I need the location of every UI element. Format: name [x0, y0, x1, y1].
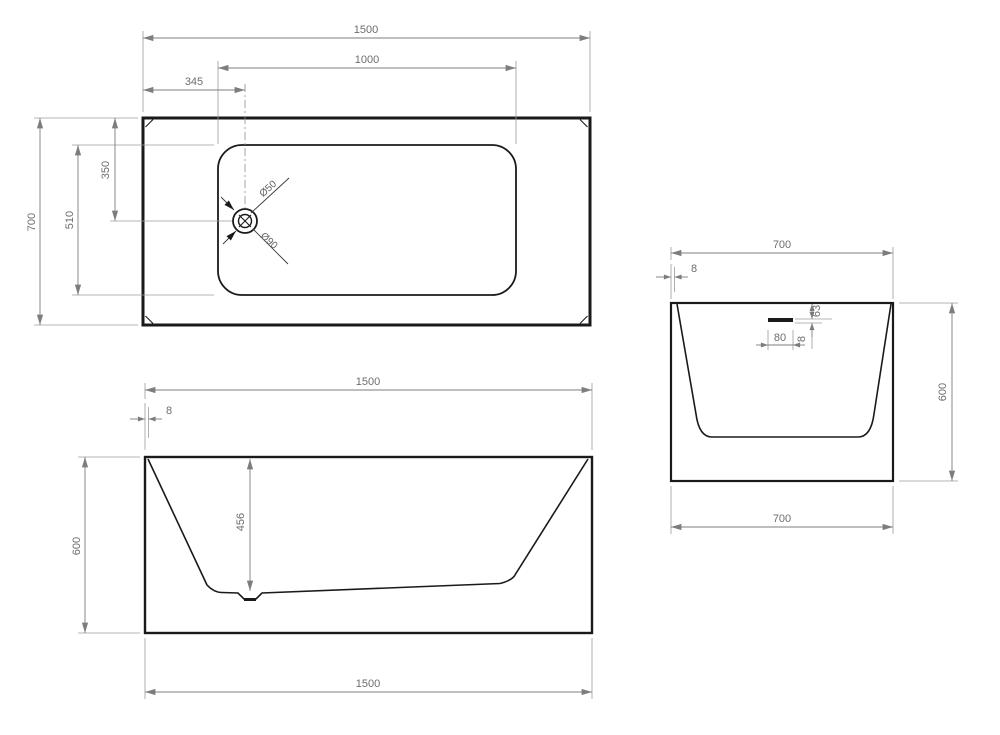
dim-top-drain-offset-left: 345 [185, 76, 203, 88]
corner-fillet-mark [580, 120, 588, 128]
bathtub-technical-drawing: Ø50 Ø90 1500 1000 345 700 510 350 [0, 0, 1000, 735]
front-view: 8 1500 600 456 1500 [71, 376, 592, 699]
dim-side-width-bottom: 700 [773, 513, 791, 525]
dim-top-basin-length: 1000 [355, 54, 379, 66]
dim-side-width-top: 700 [773, 239, 791, 251]
dim-top-drain-offset-top: 350 [100, 161, 112, 179]
dim-front-inner-depth: 456 [235, 513, 247, 531]
dim-side-height: 600 [937, 383, 949, 401]
drain-leader-arrow [221, 197, 234, 210]
top-view: Ø50 Ø90 1500 1000 345 700 510 350 [26, 24, 590, 325]
top-view-outer-outline [143, 118, 590, 325]
corner-fillet-mark [146, 316, 154, 324]
drain-outer-diameter-label: Ø90 [258, 231, 280, 252]
front-view-basin-profile [148, 459, 588, 599]
dim-front-rim-thickness: 8 [166, 405, 172, 417]
dim-front-length-bottom: 1500 [356, 678, 380, 690]
dim-top-overall-width: 700 [26, 213, 38, 231]
dim-side-overflow-offset: 63 [811, 305, 823, 317]
front-view-outline [145, 457, 592, 633]
side-view-outline [671, 303, 893, 481]
corner-fillet-mark [580, 316, 588, 324]
dim-top-overall-length: 1500 [354, 24, 378, 36]
drain-symbol: Ø50 Ø90 [110, 84, 289, 264]
drain-inner-diameter-label: Ø50 [258, 178, 280, 199]
drain-leader-arrow [223, 231, 236, 244]
dim-side-overflow-height: 8 [796, 336, 808, 342]
dim-front-length-top: 1500 [356, 376, 380, 388]
side-view: 8 700 63 8 80 600 700 [656, 239, 958, 534]
overflow-slot [768, 318, 793, 322]
dim-front-height: 600 [71, 537, 83, 555]
dim-side-overflow-width: 80 [774, 332, 786, 344]
corner-fillet-mark [146, 120, 154, 128]
dim-side-rim-thickness: 8 [691, 263, 697, 275]
dim-top-basin-width: 510 [64, 211, 76, 229]
drawing-sheet: Ø50 Ø90 1500 1000 345 700 510 350 [0, 0, 1000, 735]
top-view-basin-outline [218, 145, 516, 295]
side-view-basin-profile [677, 304, 891, 437]
